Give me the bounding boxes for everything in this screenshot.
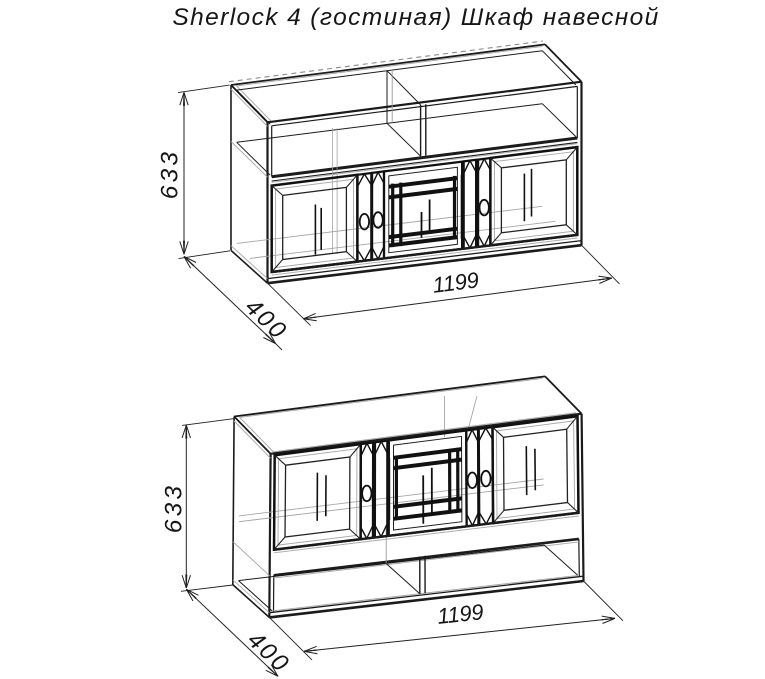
svg-text:Sherlock 4 (гостиная) Шкаф нав: Sherlock 4 (гостиная) Шкаф навесной: [172, 4, 659, 31]
svg-text:400: 400: [242, 626, 295, 678]
svg-text:400: 400: [240, 293, 293, 345]
svg-text:633: 633: [157, 149, 184, 199]
svg-text:1199: 1199: [431, 267, 480, 298]
svg-text:1199: 1199: [436, 599, 485, 629]
svg-text:633: 633: [161, 483, 188, 533]
